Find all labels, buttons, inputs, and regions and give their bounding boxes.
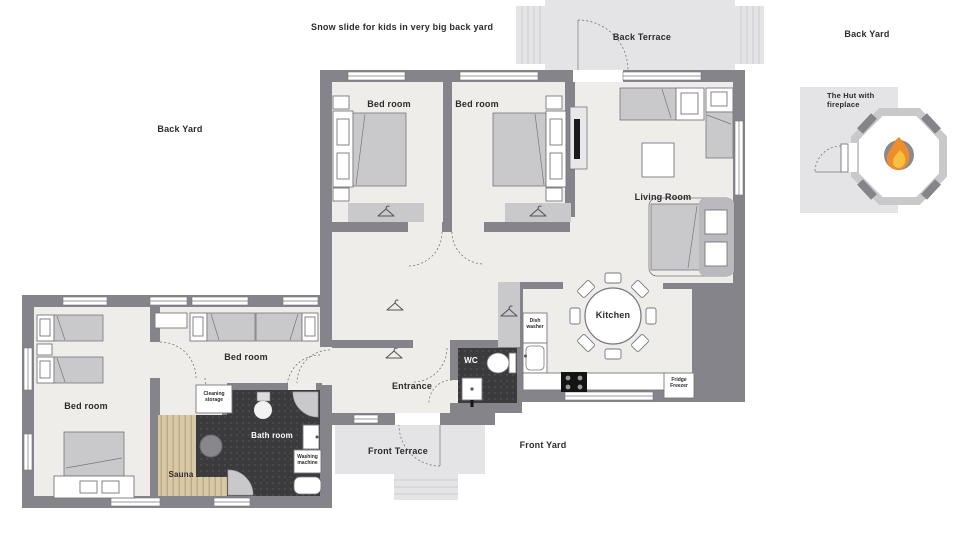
nightstand-icon: [37, 344, 52, 355]
label-sauna: Sauna: [151, 470, 211, 479]
nightstand-icon: [333, 96, 349, 109]
label-back-yard-left: Back Yard: [140, 124, 220, 134]
label-front-yard: Front Yard: [503, 440, 583, 450]
label-snow-slide: Snow slide for kids in very big back yar…: [311, 22, 551, 32]
label-living-room: Living Room: [613, 192, 713, 202]
label-front-terrace: Front Terrace: [358, 446, 438, 456]
wardrobe-icon: [348, 203, 424, 222]
coffee-table-icon: [642, 143, 674, 177]
bed-icon: [256, 313, 302, 341]
label-cleaning-storage: Cleaning storage: [196, 392, 232, 404]
double-bed-icon: [64, 432, 124, 476]
chair-icon: [605, 273, 621, 283]
label-back-yard-right: Back Yard: [827, 29, 907, 39]
label-kitchen: Kitchen: [573, 310, 653, 320]
label-bedroom-b: Bed room: [437, 99, 517, 109]
label-dish-washer: Dish washer: [523, 319, 547, 331]
floor-plan-drawing: [0, 0, 960, 547]
label-wc: WC: [451, 356, 491, 365]
label-bedroom-a: Bed room: [349, 99, 429, 109]
label-washing-machine: Washing machine: [294, 455, 321, 467]
tv-icon: [574, 119, 580, 159]
label-hut: The Hut with fireplace: [827, 92, 885, 109]
table-icon: [155, 313, 187, 328]
fixture-icon: [294, 477, 321, 494]
nightstand-icon: [333, 188, 349, 201]
label-bedroom-c: Bed room: [206, 352, 286, 362]
chair-icon: [605, 349, 621, 359]
bed-icon: [493, 113, 546, 186]
label-bedroom-d: Bed room: [46, 401, 126, 411]
front-terrace-area: [335, 424, 485, 500]
floor-plan-canvas: Snow slide for kids in very big back yar…: [0, 0, 960, 547]
nightstand-icon: [546, 188, 562, 201]
hut-door-leaf: [841, 144, 848, 172]
label-bath-room: Bath room: [232, 431, 312, 440]
hall-closet: [498, 282, 520, 347]
sauna-heater-icon: [200, 435, 222, 457]
stove-icon: [561, 372, 587, 392]
double-bed-icon: [651, 204, 703, 270]
bed-icon: [620, 88, 677, 120]
toilet-icon: [254, 401, 272, 419]
label-back-terrace: Back Terrace: [592, 32, 692, 42]
label-fridge-freezer: Fridge Freezer: [664, 378, 694, 390]
label-entrance: Entrance: [372, 381, 452, 391]
wardrobe-icon: [505, 203, 571, 222]
nightstand-icon: [546, 96, 562, 109]
counter: [523, 373, 667, 390]
